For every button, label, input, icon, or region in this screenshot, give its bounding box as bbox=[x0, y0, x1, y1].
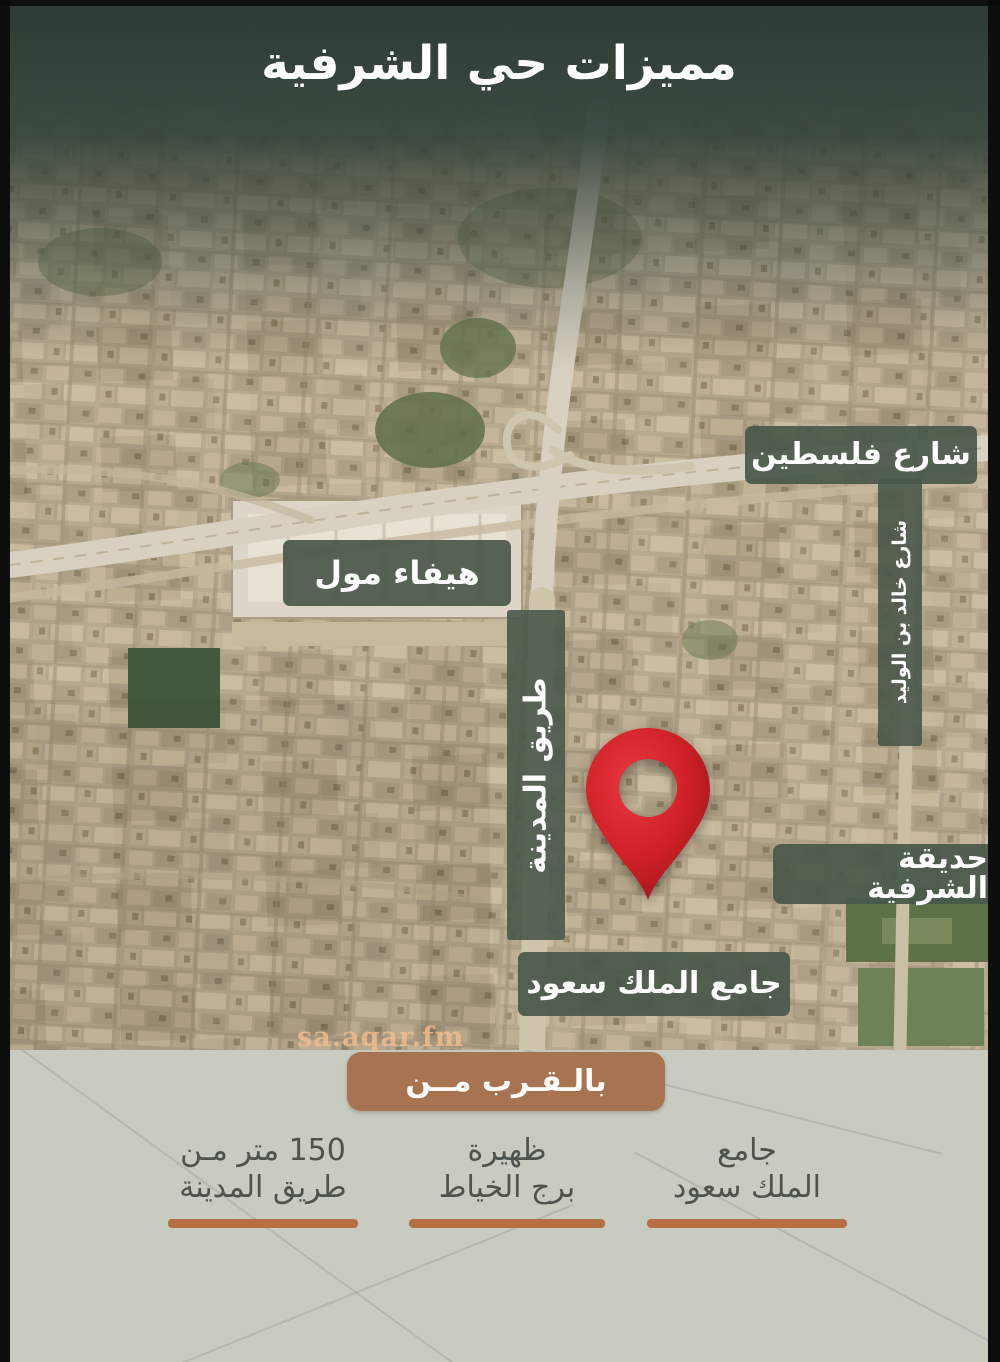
map-label-hayfa-mall: هيفاء مول bbox=[283, 540, 511, 606]
left-frame-bar bbox=[0, 0, 10, 1362]
location-pin-icon bbox=[583, 726, 713, 903]
madinah-road-text: طريق المدينة bbox=[519, 677, 554, 873]
nearby-item-line2: طريق المدينة bbox=[168, 1169, 358, 1206]
nearby-item-khayyat-tower: ظهيرة برج الخياط bbox=[409, 1132, 605, 1228]
nearby-item-line1: ظهيرة bbox=[409, 1132, 605, 1169]
nearby-banner: بالـقـرب مــن bbox=[347, 1052, 665, 1111]
satellite-map: مميزات حي الشرفية شارع فلسطين هيفاء مول … bbox=[10, 0, 988, 1050]
underline-bar bbox=[409, 1219, 605, 1228]
right-frame-bar bbox=[988, 0, 1000, 1362]
flyer-content: مميزات حي الشرفية شارع فلسطين هيفاء مول … bbox=[10, 0, 988, 1362]
nearby-item-line1: جامع bbox=[647, 1132, 847, 1169]
page-title: مميزات حي الشرفية bbox=[10, 36, 988, 91]
top-frame-bar bbox=[0, 0, 1000, 6]
map-label-palestine-street: شارع فلسطين bbox=[745, 426, 977, 484]
watermark: sa.aqar.fm bbox=[297, 1022, 464, 1053]
nearby-item-line2: الملك سعود bbox=[647, 1169, 847, 1206]
map-label-sharafiyah-park: حديقة الشرفية bbox=[773, 844, 988, 904]
map-label-king-saud-mosque: جامع الملك سعود bbox=[518, 952, 790, 1016]
underline-bar bbox=[647, 1219, 847, 1228]
map-label-khalid-street: شارع خالد بن الوليد bbox=[878, 478, 922, 746]
nearby-item-madinah-road: 150 متر مـن طريق المدينة bbox=[168, 1132, 358, 1228]
nearby-item-line1: 150 متر مـن bbox=[168, 1132, 358, 1169]
nearby-item-line2: برج الخياط bbox=[409, 1169, 605, 1206]
nearby-item-king-saud-mosque: جامع الملك سعود bbox=[647, 1132, 847, 1228]
underline-bar bbox=[168, 1219, 358, 1228]
map-label-madinah-road: طريق المدينة bbox=[507, 610, 565, 940]
khalid-street-text: شارع خالد بن الوليد bbox=[889, 520, 911, 704]
real-estate-flyer: مميزات حي الشرفية شارع فلسطين هيفاء مول … bbox=[0, 0, 1000, 1362]
